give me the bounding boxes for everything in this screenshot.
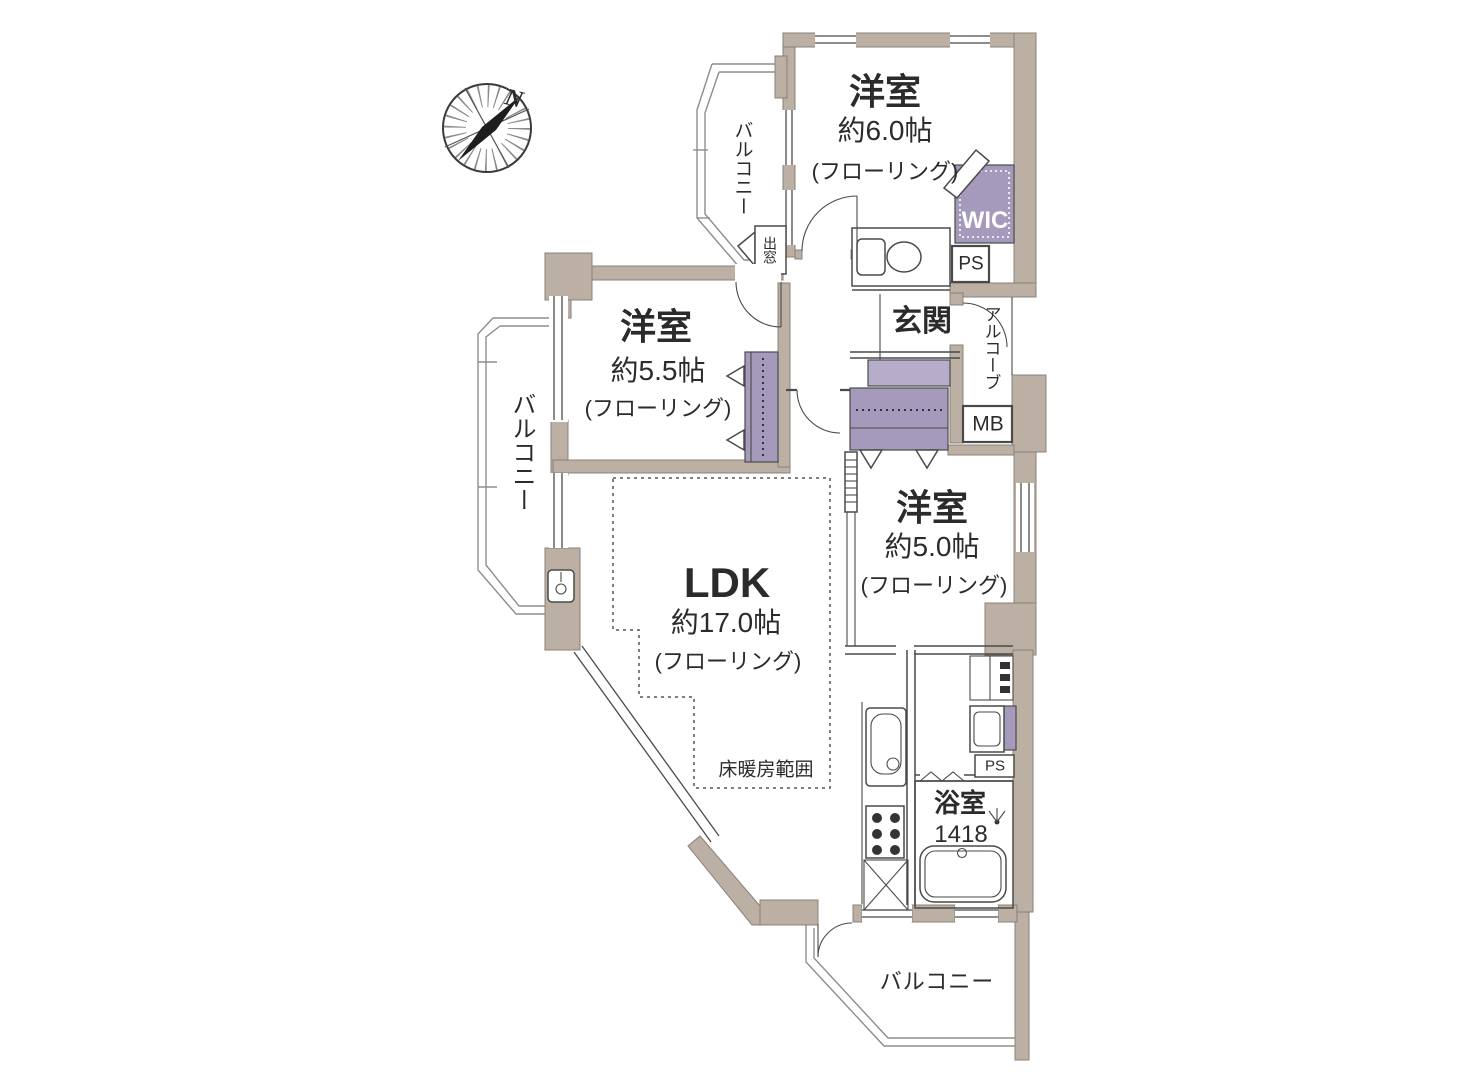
room-mid-name: 洋室	[620, 309, 692, 345]
hanger-mark	[727, 366, 744, 386]
ldk-name: LDK	[684, 562, 770, 604]
bathroom-size: 1418	[934, 823, 987, 847]
wic-label: WIC	[962, 209, 1009, 233]
shoe-cabinet	[868, 360, 950, 386]
floor-plan: 洋室 約6.0帖 (フローリング) 洋室 約5.5帖 (フローリング) 洋室 約…	[0, 0, 1460, 1080]
bathroom-name: 浴室	[934, 790, 986, 816]
floor-heating-label: 床暖房範囲	[718, 761, 813, 780]
balcony-top-label: バルコニー	[733, 121, 752, 216]
balcony-bottom-label: バルコニー	[880, 971, 995, 993]
room-top-name: 洋室	[849, 74, 921, 110]
room-top-size: 約6.0帖	[838, 117, 933, 145]
ldk-floor: (フローリング)	[655, 651, 802, 673]
room-top-floor: (フローリング)	[812, 161, 959, 183]
washstand	[970, 706, 1004, 752]
bay-window-label: 出窓	[763, 236, 777, 264]
room-right-size: 約5.0帖	[885, 533, 980, 561]
entrance-label: 玄関	[892, 307, 952, 337]
floor-plan-drawing	[0, 0, 1460, 1080]
balcony-left-label: バルコニー	[509, 392, 533, 512]
room-right-floor: (フローリング)	[861, 575, 1008, 597]
room-mid-size: 約5.5帖	[611, 357, 706, 385]
toilet	[852, 228, 950, 286]
hanger-mark	[916, 450, 938, 468]
balcony-faucet	[548, 570, 574, 602]
closet-bedroom-mid	[745, 352, 778, 462]
bathtub	[920, 846, 1006, 902]
alcove-label: アルコーブ	[983, 306, 1000, 391]
hanger-mark	[860, 450, 882, 468]
mb-label: MB	[972, 414, 1004, 435]
room-mid-floor: (フローリング)	[585, 398, 732, 420]
ps-bottom-label: PS	[985, 759, 1005, 774]
ps-top-label: PS	[958, 255, 983, 274]
room-right-name: 洋室	[896, 490, 968, 526]
kitchen	[862, 702, 908, 910]
hanger-mark	[727, 430, 744, 450]
closet-bedroom-right	[850, 388, 948, 450]
shower-icon	[989, 808, 1005, 825]
ldk-size: 約17.0帖	[671, 609, 782, 637]
